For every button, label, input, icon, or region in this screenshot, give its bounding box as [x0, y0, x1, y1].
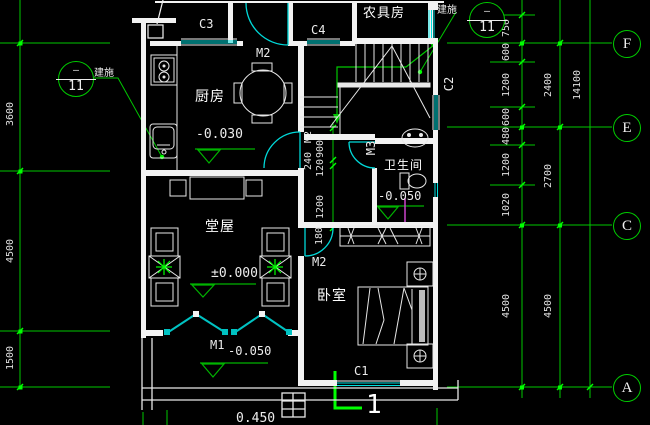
room-label-bedroom: 卧室 [317, 289, 347, 303]
bedroom-furniture [340, 226, 433, 368]
dim-right-480: 480 [502, 127, 512, 145]
window-c2 [433, 95, 439, 130]
callout-sheet-number: 11 [479, 20, 495, 35]
floor-plan-canvas: 厨房 堂屋 卧室 卫生间 农具房 -0.030 ±0.000 -0.050 -0… [0, 0, 650, 425]
kitchen-fixtures [150, 46, 292, 170]
room-label-toolroom: 农具房 [363, 7, 405, 20]
dining-table [234, 63, 292, 123]
stairs [300, 44, 430, 134]
room-label-hall: 堂屋 [205, 220, 235, 234]
room-label-bathroom: 卫生间 [384, 159, 423, 171]
window-c4 [307, 39, 340, 45]
label-c1: C1 [354, 365, 368, 377]
dim-240: 240 [304, 152, 314, 170]
door-m2-kitchen [264, 132, 300, 168]
label-m2-bedroom: M2 [312, 256, 326, 268]
axis-letter-e: E [622, 120, 631, 137]
detail-callout-top-right: — 11 [469, 2, 505, 38]
dim-right-600a: 600 [502, 43, 512, 61]
label-c4: C4 [311, 24, 325, 36]
dim-left-3600: 3600 [6, 102, 16, 126]
detail-callout-left: — 11 [58, 61, 94, 97]
dim-right-4500: 4500 [502, 294, 512, 318]
axis-letter-f: F [623, 36, 631, 53]
toilet-icon [400, 173, 426, 189]
callout-sheet-number: 11 [68, 79, 84, 94]
dim-total-14100: 14100 [573, 70, 583, 100]
dim-mid-2700: 2700 [544, 164, 554, 188]
level-symbols [190, 149, 424, 377]
dim-right-1200b: 1200 [502, 153, 512, 177]
label-m1: M1 [210, 339, 224, 351]
level-outdoor: 0.450 [236, 412, 275, 425]
wardrobe [340, 226, 430, 246]
dim-right-1200a: 1200 [502, 73, 512, 97]
label-m3: M3 [365, 141, 377, 155]
callout-blank: — [73, 65, 79, 76]
label-c2: C2 [443, 77, 455, 91]
dim-mid-4500: 4500 [544, 294, 554, 318]
grid-axis-e: E [613, 114, 641, 142]
door-m1-double [164, 311, 292, 335]
door-m2-top [246, 3, 288, 45]
label-c3: C3 [199, 18, 213, 30]
bed [358, 287, 428, 345]
level-bathroom: -0.050 [378, 190, 421, 202]
stove-icon [151, 55, 177, 85]
grid-axis-c: C [613, 212, 641, 240]
window-bathroom [435, 183, 438, 197]
altar-table [190, 177, 244, 199]
grid-axis-a: A [613, 374, 641, 402]
dim-left-1500: 1500 [6, 346, 16, 370]
dim-120: 120 [316, 159, 326, 177]
detail-callout-left-tag: 建施 [94, 64, 114, 79]
dim-mid-2400: 2400 [544, 73, 554, 97]
figure-number: 1 [366, 392, 382, 418]
dim-900: 900 [316, 140, 326, 158]
callout-blank: — [484, 6, 490, 17]
dim-right-600b: 600 [502, 108, 512, 126]
label-m2-kitchen: M2 [304, 131, 314, 143]
axis-letter-a: A [622, 380, 633, 397]
level-entrance: -0.050 [228, 345, 271, 357]
grid-axis-f: F [613, 30, 641, 58]
stair-direction-arrow [333, 40, 438, 124]
dim-1200: 1200 [316, 195, 326, 219]
detail-callout-top-right-tag: 建施 [437, 1, 457, 16]
dim-left-4500: 4500 [6, 239, 16, 263]
grid-grips [19, 42, 563, 390]
sink-icon [150, 124, 177, 158]
room-label-kitchen: 厨房 [195, 90, 225, 104]
level-kitchen: -0.030 [196, 128, 243, 141]
dim-180: 180 [315, 227, 325, 245]
window-c1 [337, 381, 400, 388]
axis-letter-c: C [622, 218, 632, 235]
label-m2-top: M2 [256, 47, 270, 59]
dim-right-1020: 1020 [502, 193, 512, 217]
hall-furniture [149, 177, 291, 306]
level-hall: ±0.000 [211, 267, 258, 280]
